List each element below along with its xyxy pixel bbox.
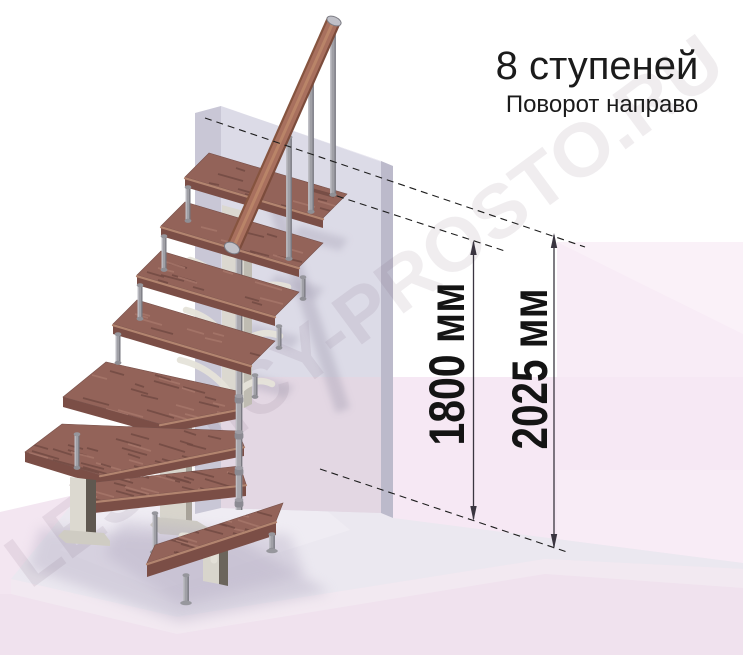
svg-text:8 ступеней: 8 ступеней	[496, 44, 699, 88]
svg-text:2025 мм: 2025 мм	[502, 289, 558, 450]
svg-text:1800 мм: 1800 мм	[419, 283, 475, 446]
svg-text:Поворот направо: Поворот направо	[506, 91, 698, 118]
